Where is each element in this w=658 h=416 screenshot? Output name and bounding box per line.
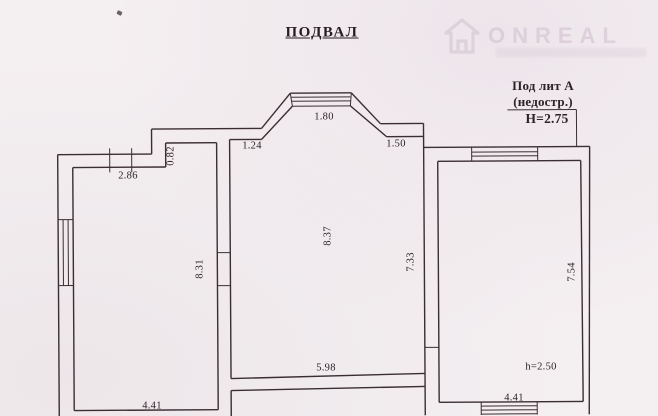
dim-left-room-depth: 8.31 bbox=[195, 259, 206, 279]
bay-window bbox=[290, 93, 351, 106]
dim-left-room-top-width: 2.86 bbox=[118, 171, 138, 182]
top-wall-window-ticks bbox=[110, 148, 132, 172]
dim-right-room-ceiling-height: h=2.50 bbox=[525, 362, 556, 373]
dim-left-room-bottom-width: 4.41 bbox=[142, 401, 162, 412]
annotation-height: Н=2.75 bbox=[525, 111, 568, 127]
annotation-line1: Под лит А bbox=[512, 78, 574, 94]
dim-wall-step: 0.82 bbox=[166, 146, 177, 166]
dim-bay-left-wall: 1.24 bbox=[242, 141, 262, 152]
dim-central-room-bottom-width: 5.98 bbox=[316, 363, 336, 374]
dim-central-room-right-depth: 7.33 bbox=[406, 252, 417, 272]
dim-bay-window-width: 1.80 bbox=[314, 112, 334, 123]
dim-right-room-depth: 7.54 bbox=[567, 262, 578, 282]
dim-central-room-depth: 8.37 bbox=[323, 226, 334, 246]
floorplan-drawing bbox=[0, 0, 658, 416]
dim-right-room-bottom-width: 4.41 bbox=[504, 393, 524, 404]
dim-bay-right-wall: 1.50 bbox=[386, 139, 406, 150]
left-wall-window bbox=[58, 220, 73, 286]
right-room-bottom-window bbox=[481, 402, 537, 415]
scanned-floorplan-page: ONREAL bbox=[0, 0, 658, 416]
annotation-line2: (недостр.) bbox=[513, 94, 573, 110]
right-room-top-window bbox=[472, 147, 538, 161]
plan-title: ПОДВАЛ bbox=[286, 25, 359, 42]
